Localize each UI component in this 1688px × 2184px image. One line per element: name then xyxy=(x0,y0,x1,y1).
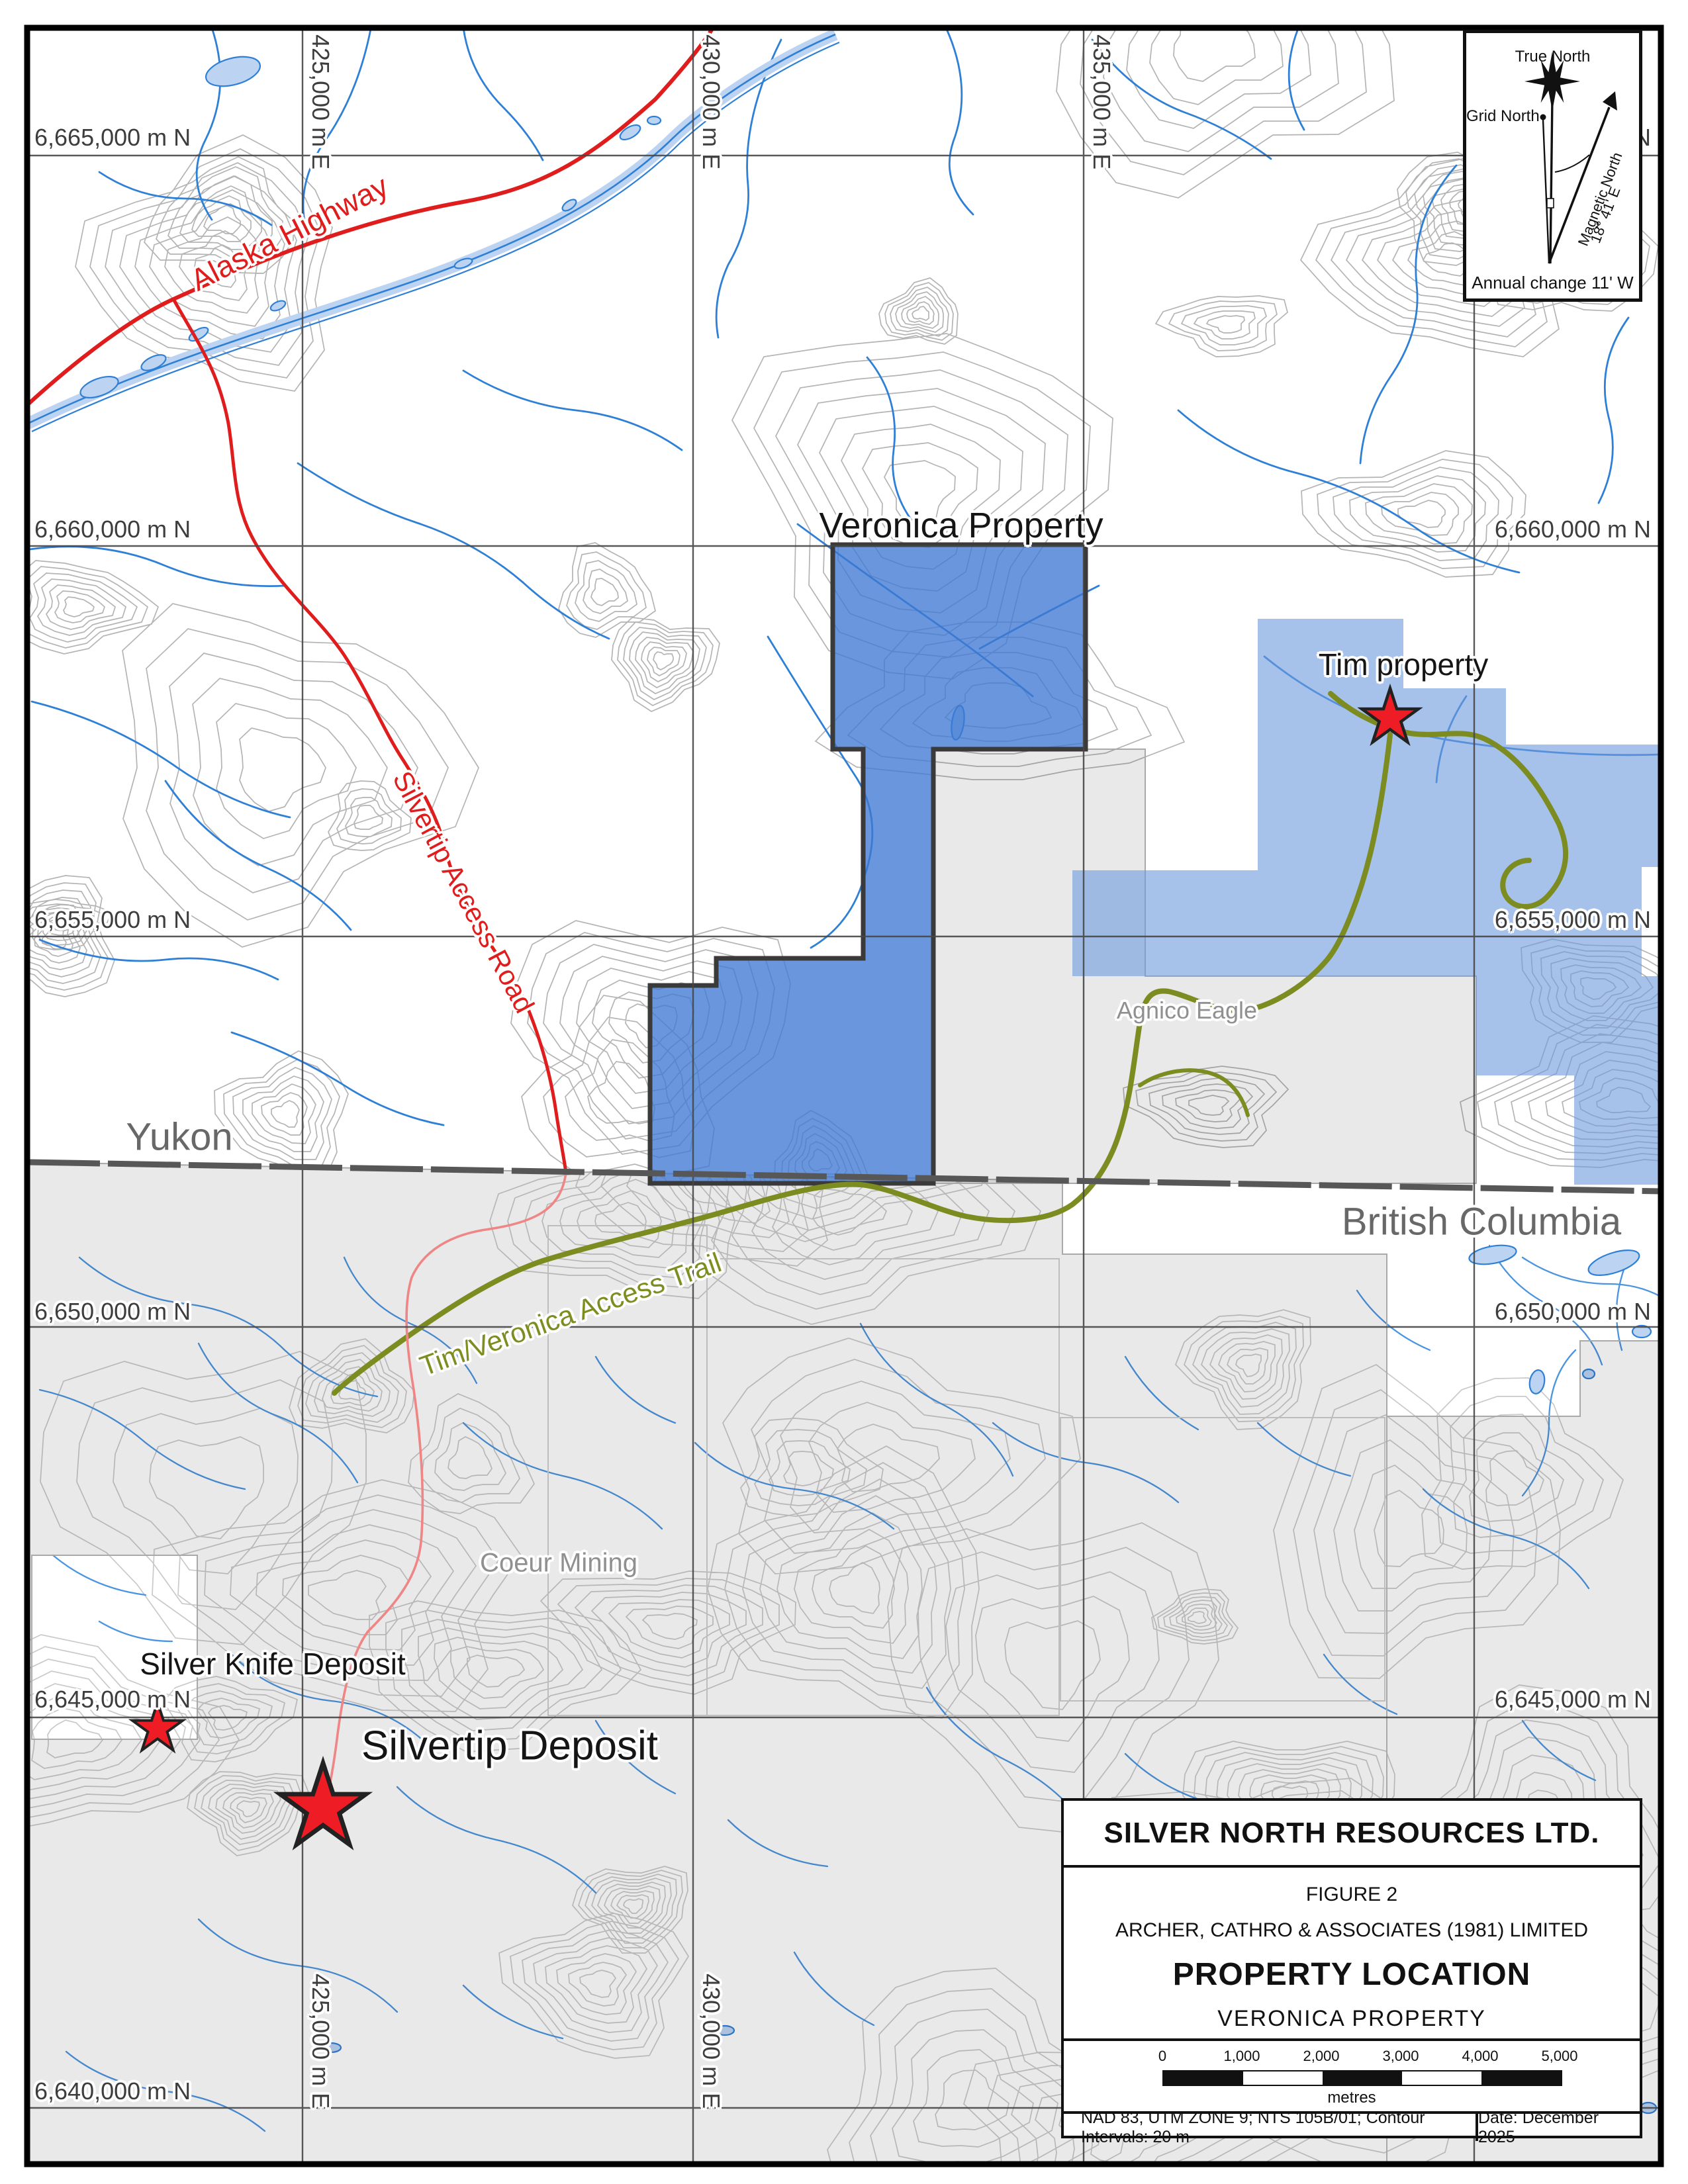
northing-label-right-4: 6,645,000 m N xyxy=(1495,1686,1651,1713)
north-arrow-inset: True North Grid North Magnetic North 18°… xyxy=(1463,30,1642,302)
easting-label-top-2: 435,000 m E xyxy=(1088,34,1115,169)
datum-note: NAD 83, UTM ZONE 9; NTS 105B/01; Contour… xyxy=(1064,2114,1476,2141)
northing-label-left-1: 6,660,000 m N xyxy=(34,516,191,543)
tim-property-label: Tim property xyxy=(1319,647,1488,682)
date-note: Date: December 2025 xyxy=(1476,2114,1640,2141)
british-columbia-label: British Columbia xyxy=(1342,1200,1621,1244)
annual-change-label: Annual change 11' W xyxy=(1466,273,1639,293)
agnico-eagle-label: Agnico Eagle xyxy=(1117,997,1257,1024)
property-location-map: Veronica Property Tim property Yukon Bri… xyxy=(0,0,1688,2184)
easting-label-top-0: 425,000 m E xyxy=(306,34,334,169)
silver-knife-deposit-label: Silver Knife Deposit xyxy=(140,1646,405,1682)
northing-label-right-2: 6,655,000 m N xyxy=(1495,906,1651,934)
grid-north-label: Grid North xyxy=(1466,107,1538,126)
scale-tick-5: 5,000 xyxy=(1541,2048,1577,2065)
scale-tick-4: 4,000 xyxy=(1462,2048,1498,2065)
northing-label-right-3: 6,650,000 m N xyxy=(1495,1298,1651,1326)
scale-bar-segments xyxy=(1162,2070,1562,2086)
easting-label-bottom-1: 430,000 m E xyxy=(697,1974,725,2109)
northing-label-right-1: 6,660,000 m N xyxy=(1495,516,1651,543)
map-subtitle: VERONICA PROPERTY xyxy=(1064,1993,1640,2032)
grid-north-dot xyxy=(1540,114,1546,120)
northing-label-left-5: 6,640,000 m N xyxy=(34,2077,191,2105)
silvertip-deposit-label: Silvertip Deposit xyxy=(361,1723,658,1770)
northing-label-left-0: 6,665,000 m N xyxy=(34,124,191,152)
true-north-label: True North xyxy=(1466,48,1639,66)
title-block: SILVER NORTH RESOURCES LTD. FIGURE 2 ARC… xyxy=(1061,1798,1642,2138)
scale-tick-0: 0 xyxy=(1158,2048,1166,2065)
scale-tick-2: 2,000 xyxy=(1303,2048,1339,2065)
northing-label-left-2: 6,655,000 m N xyxy=(34,906,191,934)
company-name: SILVER NORTH RESOURCES LTD. xyxy=(1064,1801,1640,1868)
figure-number: FIGURE 2 xyxy=(1064,1868,1640,1906)
scale-units: metres xyxy=(1064,2089,1640,2107)
northing-label-left-4: 6,645,000 m N xyxy=(34,1686,191,1713)
silvertip-access-road xyxy=(173,299,566,1173)
scale-bar: 0 1,000 2,000 3,000 4,000 5,000 metres xyxy=(1064,2041,1640,2114)
easting-label-bottom-0: 425,000 m E xyxy=(306,1974,334,2109)
veronica-property-label: Veronica Property xyxy=(819,505,1103,546)
alaska-highway-road xyxy=(27,28,713,405)
easting-label-top-1: 430,000 m E xyxy=(697,34,725,169)
coeur-mining-label: Coeur Mining xyxy=(480,1549,637,1578)
yukon-label: Yukon xyxy=(126,1115,232,1160)
map-title: PROPERTY LOCATION xyxy=(1064,1942,1640,1993)
scale-tick-1: 1,000 xyxy=(1223,2048,1260,2065)
consultant-name: ARCHER, CATHRO & ASSOCIATES (1981) LIMIT… xyxy=(1064,1906,1640,1942)
northing-label-left-3: 6,650,000 m N xyxy=(34,1298,191,1326)
scale-tick-3: 3,000 xyxy=(1382,2048,1419,2065)
